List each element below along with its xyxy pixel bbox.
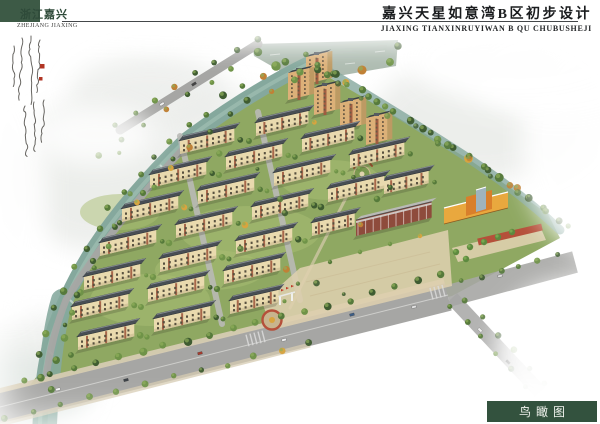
seal-stamp: [40, 64, 45, 69]
region-name-en: ZHEJIANG JIAXING: [17, 23, 78, 29]
aerial-rendering: [0, 0, 600, 424]
seal-stamp: [39, 77, 43, 81]
view-label-text: 鸟瞰图: [514, 403, 570, 420]
project-title-en: JIAXING TIANXINRUYIWAN B QU CHUBUSHEJI: [381, 24, 592, 33]
view-label-box: 鸟瞰图: [487, 401, 597, 422]
calligraphy-inscription: [2, 32, 62, 172]
region-name-cn: 浙江嘉兴: [20, 6, 68, 22]
presentation-sheet: 浙江嘉兴 ZHEJIANG JIAXING 嘉兴天星如意湾B区初步设计 JIAX…: [0, 0, 600, 424]
project-title-cn: 嘉兴天星如意湾B区初步设计: [382, 3, 592, 23]
